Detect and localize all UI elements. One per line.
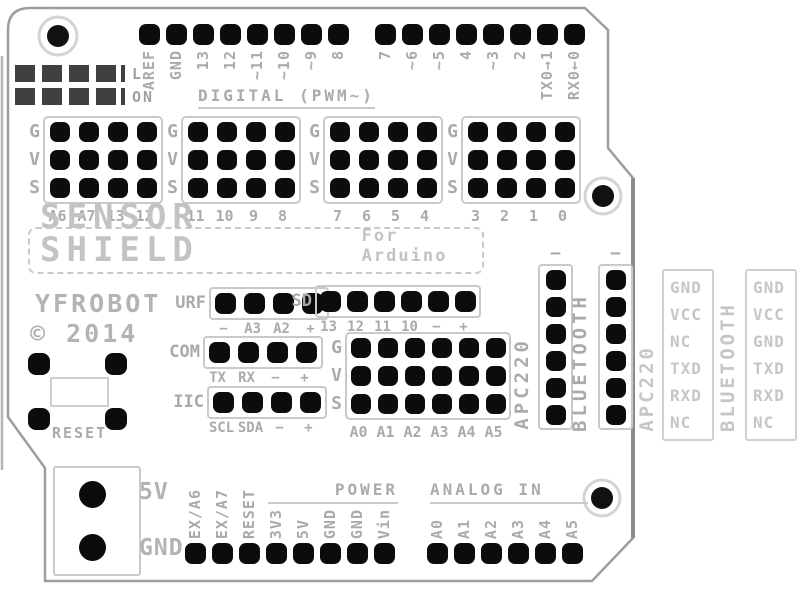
header-pin: 2: [507, 24, 534, 100]
pin-hole: [359, 122, 379, 142]
pin-hole: [274, 24, 295, 45]
pin-hole: [483, 24, 504, 45]
power-terminal-block: [53, 466, 137, 572]
header-pin: 4: [453, 24, 480, 100]
led-row-on: ON: [15, 88, 154, 105]
pin-hole: [244, 293, 265, 314]
apc220-header: −: [538, 246, 573, 430]
led-pad: [15, 88, 35, 105]
bluetooth-onboard-label: BLUETOOTH: [571, 293, 590, 432]
minus-label: −: [610, 246, 621, 262]
pin-label: 2: [513, 50, 528, 60]
pin-hole: [217, 150, 237, 170]
column-label: A0: [345, 423, 372, 441]
pinout-row: GND: [753, 328, 793, 355]
header-pin: Vin: [371, 484, 398, 564]
header-pin: ~3: [480, 24, 507, 100]
pin-hole: [50, 178, 70, 198]
pin-hole: [347, 543, 368, 564]
column-label: 4: [410, 207, 439, 225]
pin-label: +: [290, 370, 319, 386]
pin-hole: [212, 543, 233, 564]
row-label: G: [304, 117, 320, 145]
led-pad: [96, 88, 116, 105]
reset-pad: [28, 408, 50, 430]
pin-label: GND: [169, 50, 184, 80]
led-row-l: L: [15, 65, 154, 82]
pin-hole: [266, 543, 287, 564]
pinout-row: RXD: [753, 382, 793, 409]
pin-hole: [455, 291, 476, 312]
pin-hole: [378, 394, 398, 414]
pin-hole: [108, 150, 128, 170]
pin-label: GND: [323, 509, 338, 539]
pin-hole: [510, 24, 531, 45]
pin-hole: [246, 178, 266, 198]
minus-label: −: [550, 246, 561, 262]
pin-hole: [79, 178, 99, 198]
pin-hole: [537, 24, 558, 45]
pinout-row: GND: [670, 274, 710, 301]
pin-hole: [330, 122, 350, 142]
pin-grid: [461, 116, 581, 204]
pin-label: 12: [223, 50, 238, 70]
pin-hole: [388, 178, 408, 198]
row-label: S: [326, 389, 342, 417]
pin-label: SCL: [207, 420, 236, 436]
pin-hole: [486, 366, 506, 386]
pin-hole: [79, 150, 99, 170]
pin-label: ~9: [304, 50, 319, 70]
pin-hole: [546, 378, 566, 398]
pin-hole: [526, 178, 546, 198]
header-pin: A3: [505, 484, 532, 564]
pin-label: A5: [565, 519, 580, 539]
pin-hole: [185, 543, 206, 564]
pinout-row: GND: [753, 274, 793, 301]
pin-hole: [300, 392, 321, 413]
header-pin: 3V3: [263, 484, 290, 564]
pin-hole: [193, 24, 214, 45]
pin-hole: [275, 178, 295, 198]
apc220-pinout-table: GNDVCCNCTXDRXDNC: [662, 269, 714, 441]
pinout-row: RXD: [670, 382, 710, 409]
pin-hole: [137, 150, 157, 170]
pin-hole: [79, 122, 99, 142]
column-label: A5: [480, 423, 507, 441]
row-label: V: [304, 145, 320, 173]
pin-grid: [345, 332, 511, 420]
pin-label: GND: [350, 509, 365, 539]
pin-hole: [246, 150, 266, 170]
reset-pad: [28, 353, 50, 375]
pin-label: ~10: [277, 50, 292, 80]
pin-grid: [181, 116, 301, 204]
pin-hole: [606, 378, 626, 398]
pin-hole: [417, 178, 437, 198]
header-pin: A5: [559, 484, 586, 564]
pin-hole: [188, 150, 208, 170]
pin-hole: [50, 122, 70, 142]
pin-hole: [374, 543, 395, 564]
row-label: V: [442, 145, 458, 173]
urf-label: URF: [166, 287, 206, 313]
header-pin: EX/A6: [182, 484, 209, 564]
pin-hole: [432, 394, 452, 414]
power-5v-label: 5V: [139, 479, 169, 505]
pin-grid: [323, 116, 443, 204]
column-label: A3: [426, 423, 453, 441]
row-label: V: [162, 145, 178, 173]
pin-hole: [217, 122, 237, 142]
pin-label: RX0←0: [567, 50, 582, 100]
pin-hole: [459, 394, 479, 414]
pin-label: −: [265, 420, 294, 436]
pin-hole: [497, 178, 517, 198]
pin-label: Vin: [377, 509, 392, 539]
pin-hole: [296, 342, 317, 363]
pin-hole: [546, 297, 566, 317]
pin-hole: [242, 392, 263, 413]
pin-label: EX/A6: [188, 489, 203, 539]
analog-column-labels: A0A1A2A3A4A5: [345, 423, 511, 441]
pin-label: ~11: [250, 50, 265, 80]
mounting-hole-mid-right: [585, 178, 621, 214]
title-box: SENSOR SHIELD For Arduino: [28, 227, 484, 274]
led-pad: [42, 65, 62, 82]
title-suffix: For Arduino: [362, 226, 482, 266]
pin-hole: [209, 342, 230, 363]
pin-hole: [459, 338, 479, 358]
pin-hole: [239, 543, 260, 564]
row-label: S: [24, 173, 40, 201]
pin-hole: [402, 24, 423, 45]
header-pin: 5V: [290, 484, 317, 564]
pin-hole: [405, 338, 425, 358]
gvs-column-labels: 3210: [461, 207, 581, 225]
pin-hole: [405, 366, 425, 386]
pin-hole: [417, 122, 437, 142]
led-pad: [69, 65, 89, 82]
header-pin: ~5: [426, 24, 453, 100]
pin-label: TX0→1: [540, 50, 555, 100]
row-label: G: [326, 333, 342, 361]
pin-hole: [546, 405, 566, 425]
page-title: SENSOR SHIELD: [40, 201, 348, 266]
reset-pad: [105, 353, 127, 375]
iic-pin-labels: SCLSDA−+: [207, 420, 327, 436]
pin-label: A1: [457, 519, 472, 539]
pin-hole: [401, 291, 422, 312]
pin-hole: [213, 392, 234, 413]
header-pin: RESET: [236, 484, 263, 564]
led-pad: [69, 88, 89, 105]
led-pad: [15, 65, 35, 82]
pin-hole: [330, 178, 350, 198]
column-label: 0: [548, 207, 577, 225]
column-label: 6: [352, 207, 381, 225]
pin-hole: [486, 338, 506, 358]
bluetooth-header: −: [598, 246, 633, 430]
pin-hole: [564, 24, 585, 45]
power-pin-5v: [79, 481, 106, 508]
pin-hole: [454, 543, 475, 564]
pin-label: A0: [430, 519, 445, 539]
pin-label: 3V3: [269, 509, 284, 539]
pin-label: +: [294, 420, 323, 436]
pin-hole: [188, 178, 208, 198]
pin-hole: [546, 324, 566, 344]
pin-hole: [546, 351, 566, 371]
pin-hole: [359, 178, 379, 198]
pinout-row: NC: [753, 409, 793, 436]
pin-hole: [293, 543, 314, 564]
pinout-row: TXD: [753, 355, 793, 382]
pin-hole: [428, 291, 449, 312]
gvs-row-labels: GVS: [304, 117, 320, 201]
mounting-hole-top-left: [39, 17, 77, 55]
pin-label: RX: [232, 370, 261, 386]
pin-hole: [330, 150, 350, 170]
pin-hole: [50, 150, 70, 170]
reset-button-label: RESET: [52, 424, 107, 442]
pin-hole: [238, 342, 259, 363]
header-pin: AREF: [136, 24, 163, 100]
pin-hole: [535, 543, 556, 564]
pin-column: [538, 264, 573, 430]
copyright-label: © 2014: [30, 319, 138, 348]
pin-hole: [468, 150, 488, 170]
pin-hole: [526, 122, 546, 142]
pin-row: [207, 386, 327, 419]
pin-hole: [555, 150, 575, 170]
pin-hole: [247, 24, 268, 45]
pin-hole: [246, 122, 266, 142]
pin-hole: [328, 24, 349, 45]
pin-grid: [43, 116, 163, 204]
pin-hole: [388, 122, 408, 142]
apc220-pinout-label: APC220: [638, 345, 657, 432]
led-pad: [96, 65, 116, 82]
com-pin-labels: TXRX−+: [203, 370, 323, 386]
pin-hole: [497, 122, 517, 142]
pin-hole: [432, 366, 452, 386]
pin-hole: [417, 150, 437, 170]
column-label: A1: [372, 423, 399, 441]
header-pin: GND: [163, 24, 190, 100]
pin-hole: [137, 122, 157, 142]
pin-label: 7: [378, 50, 393, 60]
reset-button: RESET: [28, 353, 138, 445]
pin-hole: [166, 24, 187, 45]
column-label: A2: [399, 423, 426, 441]
row-label: G: [24, 117, 40, 145]
pin-label: 8: [331, 50, 346, 60]
pin-label: A3: [511, 519, 526, 539]
pin-hole: [388, 150, 408, 170]
led-pad-bar: [121, 88, 125, 105]
header-pin: A4: [532, 484, 559, 564]
led-pad: [42, 88, 62, 105]
pin-hole: [378, 366, 398, 386]
digital-heading: DIGITAL (PWM~): [198, 86, 375, 109]
pin-hole: [481, 543, 502, 564]
pin-hole: [405, 394, 425, 414]
gvs-row-labels: GVS: [24, 117, 40, 201]
pin-label: AREF: [142, 50, 157, 90]
column-label: A4: [453, 423, 480, 441]
analog-pin-row: A0 A1 A2 A3 A4 A5: [424, 484, 586, 564]
header-pin: ~6: [399, 24, 426, 100]
header-pin: A2: [478, 484, 505, 564]
iic-label: IIC: [164, 386, 204, 412]
pin-hole: [108, 178, 128, 198]
header-pin: 7: [372, 24, 399, 100]
pin-hole: [562, 543, 583, 564]
pin-hole: [271, 392, 292, 413]
pinout-row: NC: [670, 328, 710, 355]
sd-header: SD 13121110−+: [272, 285, 481, 335]
header-pin: A0: [424, 484, 451, 564]
sensor-shield-diagram: L ON AREF GND 13 12 ~11: [0, 0, 800, 590]
pinout-row: VCC: [753, 301, 793, 328]
row-label: G: [442, 117, 458, 145]
led-pad-bar: [121, 65, 125, 82]
pin-hole: [351, 394, 371, 414]
pin-hole: [555, 122, 575, 142]
pin-hole: [137, 178, 157, 198]
iic-header: IIC SCLSDA−+: [164, 386, 327, 436]
pin-hole: [351, 366, 371, 386]
pin-hole: [427, 543, 448, 564]
bluetooth-pinout-label: BLUETOOTH: [719, 302, 738, 432]
analog-gvs-block: GVS A0A1A2A3A4A5: [326, 332, 511, 441]
pin-hole: [301, 24, 322, 45]
pin-hole: [459, 366, 479, 386]
pin-hole: [188, 122, 208, 142]
row-label: V: [326, 361, 342, 389]
pin-hole: [526, 150, 546, 170]
pin-label: −: [209, 321, 238, 337]
pin-label: −: [261, 370, 290, 386]
pin-hole: [606, 297, 626, 317]
gvs-row-labels: GVS: [326, 333, 342, 417]
digital-header-right: 7 ~6 ~5 4 ~3 2 TX0→1 RX0←0: [372, 24, 588, 100]
power-pin-gnd: [79, 534, 106, 561]
column-label: 3: [461, 207, 490, 225]
row-label: G: [162, 117, 178, 145]
pin-label: SDA: [236, 420, 265, 436]
mounting-hole-bottom-right: [584, 480, 620, 516]
pin-hole: [267, 342, 288, 363]
pin-label: ~6: [405, 50, 420, 70]
pin-hole: [606, 405, 626, 425]
row-label: V: [24, 145, 40, 173]
pin-hole: [432, 338, 452, 358]
gvs-row-labels: GVS: [162, 117, 178, 201]
header-pin: TX0→1: [534, 24, 561, 100]
column-label: 1: [519, 207, 548, 225]
pin-label: ~3: [486, 50, 501, 70]
reset-button-body: [50, 377, 109, 407]
com-header: COM TXRX−+: [160, 336, 323, 386]
header-pin: GND: [317, 484, 344, 564]
bluetooth-pinout-table: GNDVCCGNDTXDRXDNC: [745, 269, 797, 441]
pin-hole: [275, 122, 295, 142]
pin-hole: [347, 291, 368, 312]
pin-hole: [468, 178, 488, 198]
pin-hole: [606, 270, 626, 290]
pin-hole: [378, 338, 398, 358]
pin-label: EX/A7: [215, 489, 230, 539]
pin-hole: [375, 24, 396, 45]
column-label: 5: [381, 207, 410, 225]
header-pin: EX/A7: [209, 484, 236, 564]
pin-hole: [555, 178, 575, 198]
pin-label: RESET: [242, 489, 257, 539]
pin-hole: [139, 24, 160, 45]
pin-hole: [320, 543, 341, 564]
pin-label: ~5: [432, 50, 447, 70]
pin-hole: [606, 351, 626, 371]
column-label: 2: [490, 207, 519, 225]
pin-hole: [215, 293, 236, 314]
pinout-row: NC: [670, 409, 710, 436]
apc220-onboard-label: APC220: [513, 337, 532, 430]
header-pin: RX0←0: [561, 24, 588, 100]
led-indicator-area: L ON: [15, 65, 154, 111]
pin-hole: [351, 338, 371, 358]
pin-hole: [606, 324, 626, 344]
row-label: S: [304, 173, 320, 201]
pin-hole: [456, 24, 477, 45]
pin-hole: [486, 394, 506, 414]
power-pin-row: EX/A6 EX/A7 RESET 3V3 5V GND GND Vin: [182, 484, 398, 564]
pinout-row: VCC: [670, 301, 710, 328]
sd-label: SD: [272, 285, 312, 311]
pin-hole: [468, 122, 488, 142]
pin-hole: [497, 150, 517, 170]
pin-row: [203, 336, 323, 369]
header-pin: A1: [451, 484, 478, 564]
pin-hole: [374, 291, 395, 312]
pin-label: 5V: [296, 519, 311, 539]
pin-hole: [429, 24, 450, 45]
pin-hole: [217, 178, 237, 198]
power-gnd-label: GND: [139, 535, 184, 561]
pin-column: [598, 264, 633, 430]
pin-row: [315, 285, 481, 318]
pin-hole: [320, 291, 341, 312]
pinout-row: TXD: [670, 355, 710, 382]
reset-pad: [105, 408, 127, 430]
pin-hole: [359, 150, 379, 170]
brand-label: YFROBOT: [35, 289, 161, 318]
pin-label: 13: [196, 50, 211, 70]
pin-hole: [275, 150, 295, 170]
com-label: COM: [160, 336, 200, 362]
gvs-row-labels: GVS: [442, 117, 458, 201]
pin-label: TX: [203, 370, 232, 386]
row-label: S: [442, 173, 458, 201]
pin-label: A3: [238, 321, 267, 337]
pin-hole: [108, 122, 128, 142]
pin-label: 4: [459, 50, 474, 60]
pin-hole: [220, 24, 241, 45]
pin-label: A4: [538, 519, 553, 539]
pin-hole: [508, 543, 529, 564]
pin-label: A2: [484, 519, 499, 539]
